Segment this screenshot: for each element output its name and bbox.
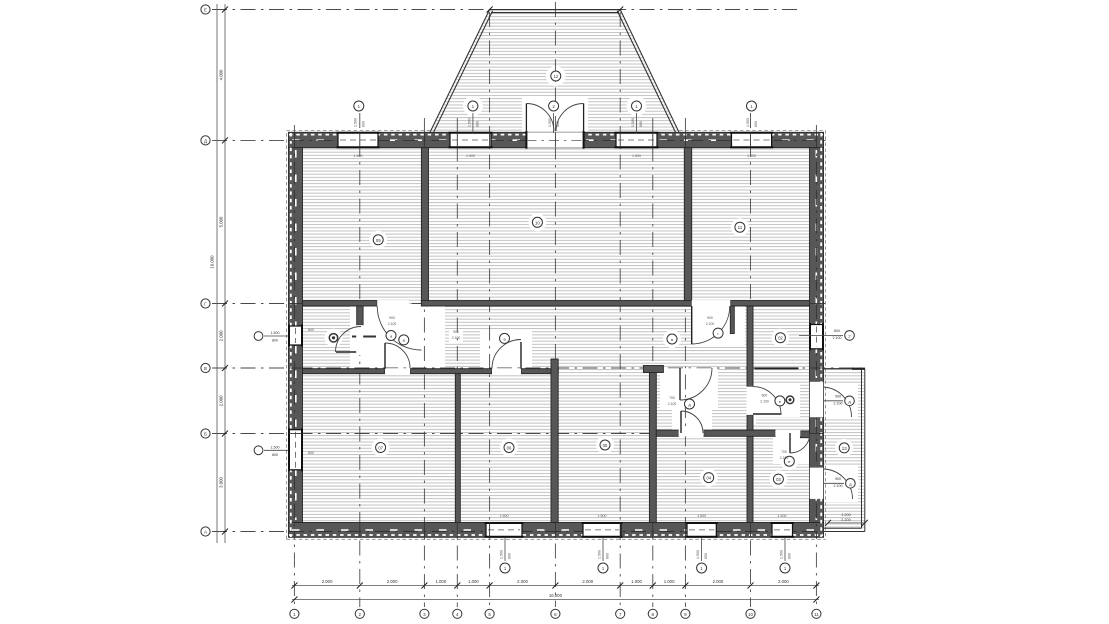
svg-text:2.100: 2.100: [834, 402, 843, 406]
svg-text:900: 900: [835, 395, 841, 399]
svg-text:900: 900: [389, 316, 395, 320]
svg-text:13: 13: [842, 446, 848, 451]
svg-text:1.500: 1.500: [466, 154, 475, 158]
svg-text:10: 10: [535, 220, 541, 225]
svg-text:1.500: 1.500: [500, 550, 504, 559]
svg-text:16.000: 16.000: [210, 255, 215, 269]
svg-text:1.500: 1.500: [778, 514, 787, 518]
svg-text:Б: Б: [204, 432, 207, 437]
svg-text:4.000: 4.000: [219, 69, 224, 80]
svg-text:1.500: 1.500: [548, 118, 552, 127]
svg-text:2.100: 2.100: [760, 400, 769, 404]
svg-text:2.000: 2.000: [322, 579, 333, 584]
svg-text:2.100: 2.100: [452, 336, 461, 340]
svg-text:06: 06: [507, 446, 512, 451]
svg-text:2.100: 2.100: [834, 484, 843, 488]
svg-text:03: 03: [776, 477, 781, 482]
svg-text:1.500: 1.500: [598, 514, 607, 518]
svg-text:1.500: 1.500: [353, 118, 357, 127]
svg-text:5.000: 5.000: [219, 216, 224, 227]
svg-text:1.000: 1.000: [435, 579, 446, 584]
svg-text:1.500: 1.500: [697, 514, 706, 518]
svg-text:в: в: [671, 337, 673, 342]
svg-text:2.000: 2.000: [713, 579, 724, 584]
svg-text:А: А: [204, 530, 207, 535]
svg-text:800: 800: [272, 453, 278, 457]
svg-text:2.000: 2.000: [219, 395, 224, 406]
svg-text:Е: Е: [204, 8, 207, 13]
svg-text:1.500: 1.500: [780, 550, 784, 559]
svg-text:800: 800: [475, 121, 479, 127]
svg-text:800: 800: [508, 553, 512, 559]
svg-text:11: 11: [814, 612, 819, 617]
svg-text:800: 800: [272, 339, 278, 343]
svg-text:16.000: 16.000: [549, 593, 563, 598]
svg-text:2.100: 2.100: [388, 322, 397, 326]
svg-text:800: 800: [834, 329, 840, 333]
svg-text:Д: Д: [204, 139, 207, 144]
svg-text:12: 12: [553, 74, 558, 79]
svg-text:1.000: 1.000: [468, 579, 479, 584]
svg-text:09: 09: [376, 238, 381, 243]
svg-text:800: 800: [754, 121, 758, 127]
svg-text:в: в: [503, 336, 505, 341]
svg-text:900: 900: [707, 316, 713, 320]
svg-text:1.500: 1.500: [632, 154, 641, 158]
svg-text:800: 800: [361, 121, 365, 127]
svg-text:1.000: 1.000: [664, 579, 675, 584]
svg-text:2.000: 2.000: [778, 579, 789, 584]
svg-text:2.000: 2.000: [219, 330, 224, 341]
svg-text:02: 02: [778, 336, 783, 341]
svg-text:800: 800: [556, 121, 560, 127]
svg-text:900: 900: [453, 330, 459, 334]
svg-text:1.200: 1.200: [841, 513, 851, 517]
svg-text:05: 05: [603, 443, 608, 448]
svg-text:1.000: 1.000: [631, 579, 642, 584]
svg-text:1.500: 1.500: [467, 118, 471, 127]
svg-text:1.500: 1.500: [696, 550, 700, 559]
svg-text:700: 700: [781, 450, 787, 454]
svg-text:1.500: 1.500: [500, 514, 509, 518]
svg-text:2.100: 2.100: [706, 322, 715, 326]
svg-text:800: 800: [639, 121, 643, 127]
svg-text:2.100: 2.100: [833, 336, 842, 340]
svg-text:800: 800: [788, 553, 792, 559]
svg-text:07: 07: [378, 446, 383, 451]
svg-text:2.000: 2.000: [387, 579, 398, 584]
svg-text:2.000: 2.000: [582, 579, 593, 584]
svg-text:800: 800: [762, 394, 768, 398]
svg-text:2.100: 2.100: [668, 402, 677, 406]
svg-text:04: 04: [706, 476, 711, 481]
svg-text:700: 700: [669, 396, 675, 400]
svg-text:800: 800: [308, 328, 314, 332]
svg-text:1.500: 1.500: [746, 118, 750, 127]
svg-text:2.200: 2.200: [841, 518, 851, 522]
svg-text:1.500: 1.500: [354, 154, 363, 158]
svg-text:800: 800: [308, 451, 314, 455]
svg-text:1.500: 1.500: [747, 154, 756, 158]
svg-text:2.100: 2.100: [780, 456, 789, 460]
svg-text:2.000: 2.000: [517, 579, 528, 584]
svg-text:900: 900: [835, 477, 841, 481]
svg-text:11: 11: [738, 225, 743, 230]
svg-text:3.000: 3.000: [219, 477, 224, 488]
svg-text:10: 10: [748, 612, 754, 617]
svg-text:1.500: 1.500: [271, 445, 280, 449]
svg-text:800: 800: [606, 553, 610, 559]
svg-text:1.500: 1.500: [631, 118, 635, 127]
svg-text:1.500: 1.500: [598, 550, 602, 559]
svg-text:800: 800: [704, 553, 708, 559]
svg-text:1.500: 1.500: [271, 331, 280, 335]
svg-text:В: В: [204, 366, 207, 371]
